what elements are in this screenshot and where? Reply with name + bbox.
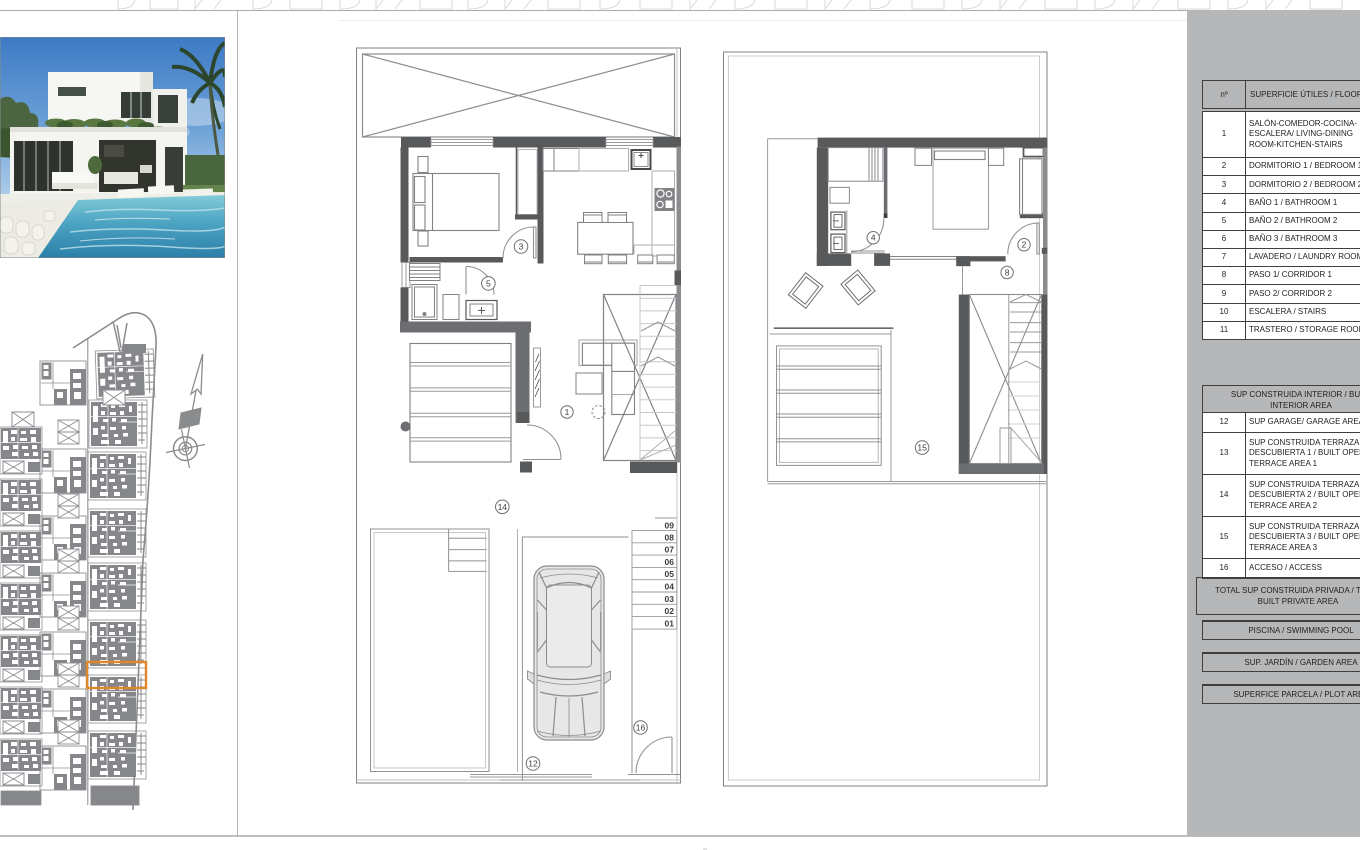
svg-text:01: 01	[665, 618, 675, 628]
svg-text:3: 3	[519, 242, 524, 252]
svg-text:03: 03	[665, 594, 675, 604]
svg-text:,,: ,,	[703, 844, 707, 850]
svg-text:2: 2	[1022, 240, 1027, 250]
svg-text:4: 4	[871, 233, 876, 243]
svg-text:07: 07	[665, 545, 675, 555]
svg-text:5: 5	[486, 278, 491, 288]
svg-text:15: 15	[917, 443, 927, 453]
svg-text:09: 09	[665, 521, 675, 531]
svg-text:8: 8	[1005, 268, 1010, 278]
svg-text:08: 08	[665, 532, 675, 542]
svg-text:02: 02	[665, 606, 675, 616]
svg-text:04: 04	[665, 582, 675, 592]
svg-text:12: 12	[528, 759, 538, 769]
svg-text:05: 05	[665, 569, 675, 579]
svg-text:16: 16	[636, 723, 646, 733]
svg-text:14: 14	[498, 502, 508, 512]
svg-text:1: 1	[565, 407, 570, 417]
svg-text:06: 06	[665, 557, 675, 567]
